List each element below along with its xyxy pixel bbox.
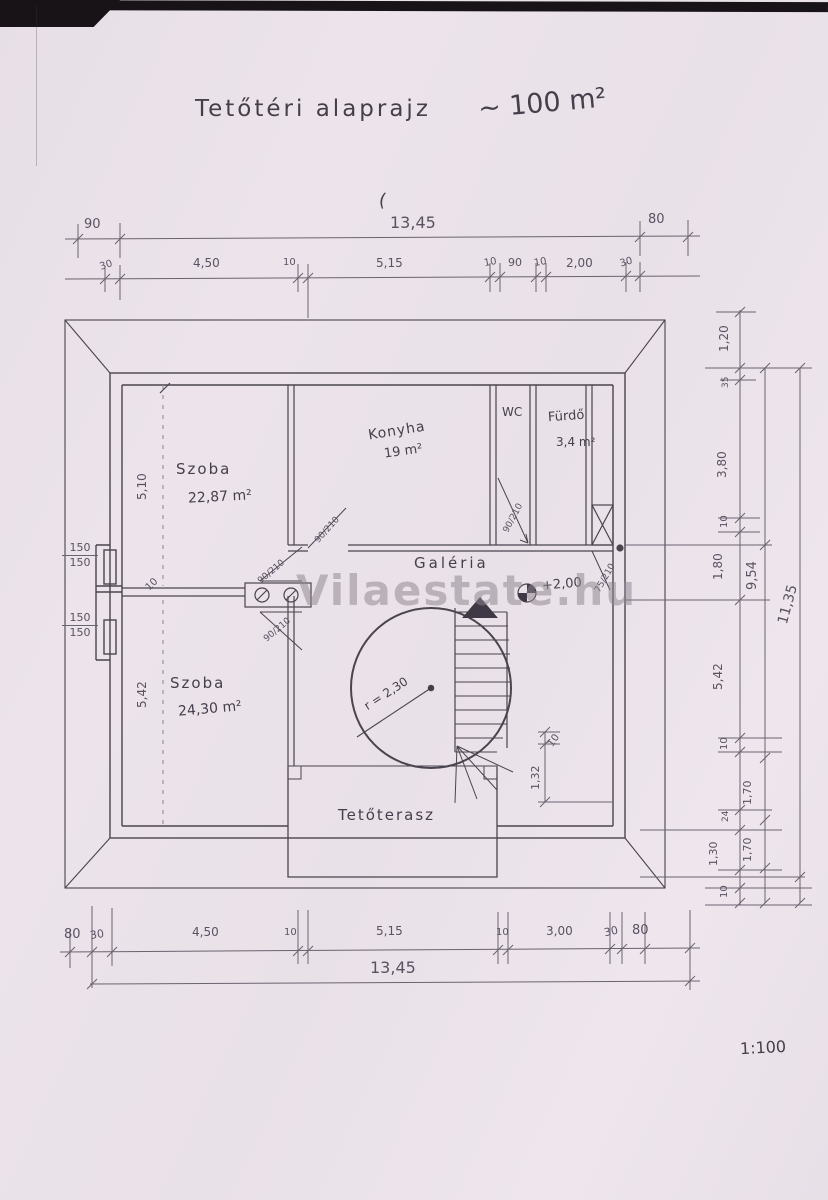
window-dim-upper: 150 150 (62, 542, 98, 569)
dim-right-inner-1: 35 (722, 377, 731, 388)
dim-top-left: 90 (84, 218, 101, 231)
dim-bot-8: 80 (632, 924, 649, 937)
dim-terrace-a: 1,32 (530, 766, 541, 791)
dim-bot-1: 30 (89, 928, 104, 941)
window-dim-lower: 150 150 (62, 612, 98, 639)
dim-right-inner-2: 3,80 (716, 451, 728, 478)
dim-bot-2: 4,50 (192, 926, 219, 938)
dim-right-inner-5: 5,42 (712, 663, 724, 690)
dim-right-middle-0: 9,54 (746, 561, 759, 590)
dim-top-2: 10 (283, 258, 296, 268)
room-wc-name: WC (502, 406, 522, 418)
scanned-floor-plan: Vilaestate.hu (0, 0, 828, 1200)
dim-bot-0: 80 (64, 928, 81, 941)
dim-top-1: 4,50 (193, 257, 220, 269)
watermark: Vilaestate.hu (296, 566, 637, 615)
room-terasz-name: Tetőterasz (338, 808, 435, 823)
dim-right-inner-0: 1,20 (718, 325, 730, 352)
dim-right-inner-8: 1,30 (708, 842, 719, 867)
room-szoba-top-name: Szoba (176, 462, 231, 477)
scale-note: 1:100 (740, 1039, 787, 1057)
room-szoba-top-area: 22,87 m² (188, 488, 252, 505)
dim-right-middle-2: 1,70 (742, 838, 753, 863)
dim-top-right: 80 (648, 213, 665, 226)
dim-right-inner-4: 1,80 (712, 553, 724, 580)
dim-top-7: 2,00 (566, 257, 593, 269)
page-title: Tetőtéri alaprajz (195, 98, 431, 121)
dim-top-5: 90 (508, 257, 522, 268)
dim-right-inner-9: 10 (720, 885, 730, 898)
dim-bot-3: 10 (284, 928, 297, 938)
dim-left-upper: 5,10 (136, 473, 148, 500)
room-furdo-name: Fürdő (548, 409, 585, 425)
dim-right-middle-1: 1,70 (742, 781, 753, 806)
dim-right-inner-7: 24 (722, 811, 731, 822)
dim-bot-6: 3,00 (546, 925, 573, 937)
room-szoba-bottom-name: Szoba (170, 676, 225, 691)
dim-bottom-total: 13,45 (370, 960, 416, 976)
dim-bot-4: 5,15 (376, 925, 403, 937)
dim-top-3: 5,15 (376, 257, 403, 269)
room-furdo-area: 3,4 m² (556, 436, 595, 448)
dim-right-inner-6: 10 (720, 737, 730, 750)
dim-bot-5: 10 (496, 928, 509, 938)
dim-top-total: 13,45 (390, 215, 436, 231)
dim-bot-7: 30 (603, 925, 619, 939)
dim-right-inner-3: 10 (720, 515, 730, 528)
dim-left-lower: 5,42 (136, 681, 148, 708)
